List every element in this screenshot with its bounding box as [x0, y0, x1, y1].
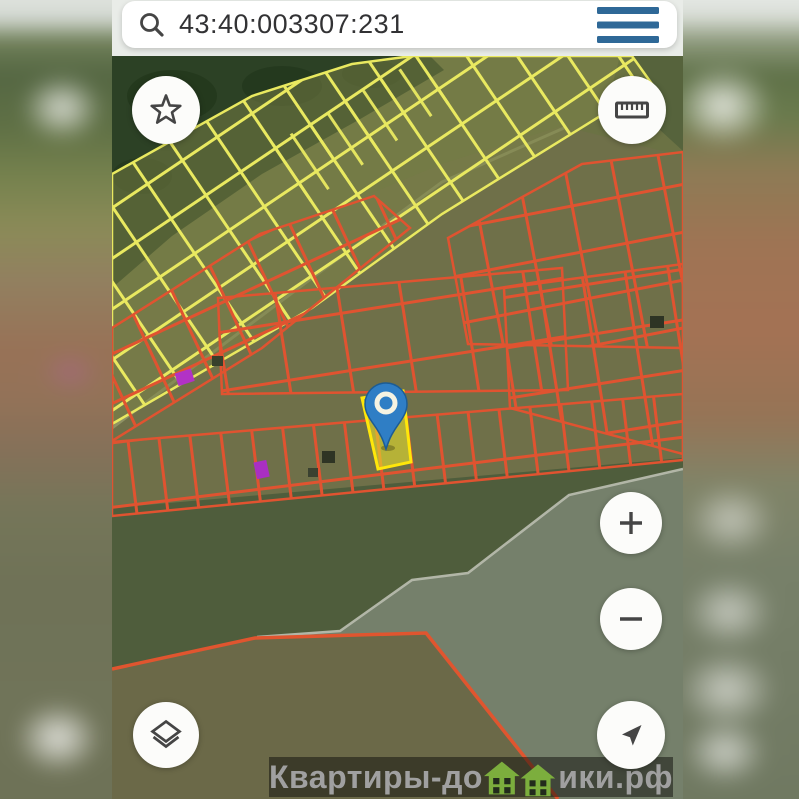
map-canvas[interactable] [112, 56, 683, 799]
menu-button[interactable] [595, 4, 661, 46]
search-input[interactable]: 43:40:003307:231 [179, 9, 581, 40]
star-icon [148, 92, 184, 128]
measure-button[interactable] [598, 76, 666, 144]
zoom-out-button[interactable] [600, 588, 662, 650]
navigation-arrow-icon [614, 718, 648, 752]
minus-icon [615, 603, 647, 635]
favorites-button[interactable] [132, 76, 200, 144]
brand-house-icon [484, 758, 557, 798]
locate-button[interactable] [597, 701, 665, 769]
search-icon [138, 11, 165, 38]
plus-icon [615, 507, 647, 539]
zoom-in-button[interactable] [600, 492, 662, 554]
search-bar[interactable]: 43:40:003307:231 [122, 1, 677, 48]
screenshot-canvas: 43:40:003307:231 [0, 0, 799, 799]
layers-icon [149, 718, 183, 752]
menu-icon [597, 6, 659, 44]
ruler-icon [614, 92, 650, 128]
layers-button[interactable] [133, 702, 199, 768]
watermark-text-left: Квартиры-до [269, 759, 483, 796]
backdrop-blur-left [0, 0, 113, 799]
backdrop-blur-right [683, 0, 799, 799]
